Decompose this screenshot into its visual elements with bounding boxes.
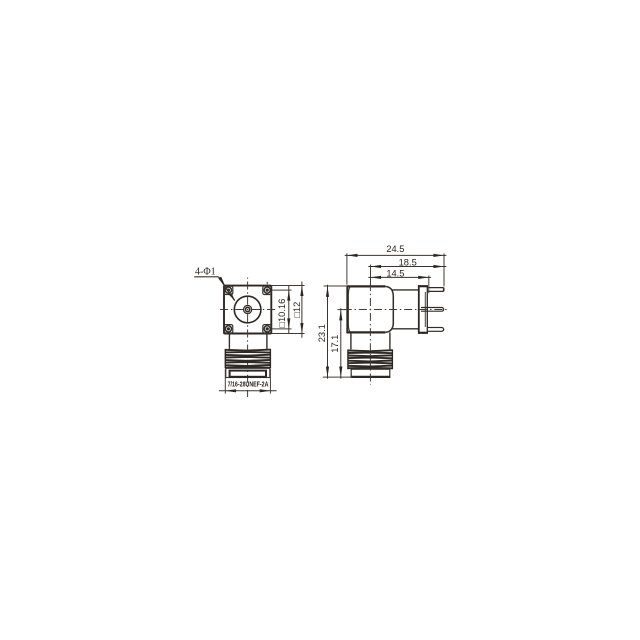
svg-text:4-Φ1: 4-Φ1 [195,267,216,278]
svg-text:23.1: 23.1 [317,324,327,342]
svg-text:14.5: 14.5 [386,268,404,278]
svg-text:7/16-28UNEF-2A: 7/16-28UNEF-2A [228,379,269,388]
svg-text:18.5: 18.5 [399,258,417,268]
svg-text:□12: □12 [292,302,302,318]
svg-text:17.1: 17.1 [330,335,340,353]
svg-text:24.5: 24.5 [386,244,404,254]
svg-text:□10.16: □10.16 [277,299,287,328]
